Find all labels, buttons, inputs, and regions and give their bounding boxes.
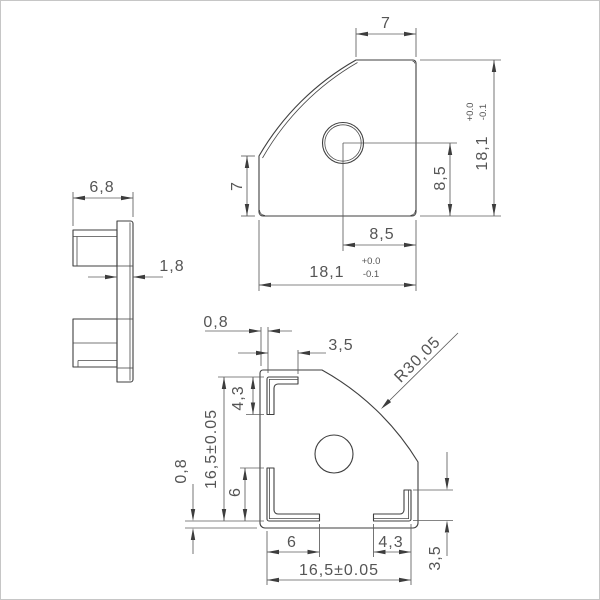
dim-back-tab-leg-top: 3,5 — [238, 337, 354, 374]
front-view-outline — [259, 60, 416, 216]
dim-front-width-tol-plus: +0.0 — [362, 256, 381, 267]
dim-back-tab-leg-bottom-left-v-label: 6 — [227, 487, 244, 497]
dim-back-edge-inset-bottom-label: 0,8 — [173, 458, 190, 483]
dim-front-left-height-label: 7 — [229, 181, 246, 191]
dim-back-tab-span-vertical-label: 16,5±0.05 — [203, 409, 220, 489]
dim-back-edge-inset-top-label: 0,8 — [203, 314, 228, 331]
dim-front-top-width: 7 — [356, 15, 416, 57]
side-upper-tab — [73, 230, 117, 266]
side-view-outline — [117, 221, 133, 382]
canvas-border — [1, 1, 600, 600]
dim-front-overall-height: 18,1 +0.0 -0.1 — [420, 60, 501, 216]
front-view: 7 18,1 +0.0 -0.1 7 — [229, 15, 501, 291]
dim-front-height-tol-plus: +0.0 — [465, 103, 476, 122]
dim-back-tab-leg-right-label: 3,5 — [427, 545, 444, 570]
dim-front-hole-to-right-label: 8,5 — [369, 226, 394, 243]
dim-back-tab-leg-bottom-left-v: 6 — [227, 468, 264, 521]
dim-front-top-width-label: 7 — [381, 15, 391, 32]
back-tab-top-left — [267, 377, 298, 415]
dim-front-hole-to-bottom-label: 8,5 — [432, 165, 449, 190]
technical-drawing-canvas: 7 18,1 +0.0 -0.1 7 — [0, 0, 600, 600]
dim-side-depth: 6,8 — [73, 179, 133, 226]
dim-side-plate-thickness: 1,8 — [88, 258, 185, 279]
dim-back-tab-span-horizontal-label: 16,5±0.05 — [299, 562, 379, 579]
dim-back-edge-inset-top: 0,8 — [203, 314, 292, 373]
back-view: R30,05 0,8 3,5 4,3 — [173, 314, 458, 585]
dim-front-left-height: 7 — [229, 156, 255, 216]
dim-front-width-tol-minus: -0.1 — [363, 269, 379, 280]
dim-back-tab-leg-top-label: 3,5 — [328, 337, 353, 354]
dim-back-tab-leg-bottom-right-label: 4,3 — [378, 534, 403, 551]
end-cap-drawing: 7 18,1 +0.0 -0.1 7 — [0, 0, 600, 600]
dim-back-corner-radius-label: R30,05 — [391, 333, 444, 386]
dim-back-corner-radius: R30,05 — [381, 333, 458, 409]
back-screw-hole — [315, 435, 353, 473]
dim-front-overall-width-label: 18,1 — [309, 264, 344, 281]
dim-side-plate-thickness-label: 1,8 — [159, 258, 184, 275]
dim-side-depth-label: 6,8 — [89, 179, 114, 196]
back-tab-bottom-left — [267, 468, 320, 521]
dim-front-overall-height-label: 18,1 — [474, 135, 491, 170]
dim-front-height-tol-minus: -0.1 — [478, 104, 489, 120]
side-lower-tab — [73, 319, 117, 367]
front-corner-fillet-tr — [413, 61, 415, 63]
dim-back-tab-leg-right: 3,5 — [413, 452, 453, 571]
dim-back-tab-leg-bottom-right: 4,3 — [374, 524, 412, 585]
dim-back-tab-span-horizontal: 16,5±0.05 — [267, 562, 411, 582]
side-view: 6,8 1,8 — [73, 179, 185, 382]
dim-back-tab-leg-bottom-left-h-label: 6 — [287, 534, 297, 551]
back-tab-bottom-right — [374, 490, 412, 521]
back-view-outline — [260, 370, 418, 528]
dim-back-tab-leg-left-label: 4,3 — [230, 385, 247, 410]
dim-back-tab-span-vertical: 16,5±0.05 — [185, 377, 264, 521]
dim-front-hole-to-bottom: 8,5 — [432, 143, 452, 216]
